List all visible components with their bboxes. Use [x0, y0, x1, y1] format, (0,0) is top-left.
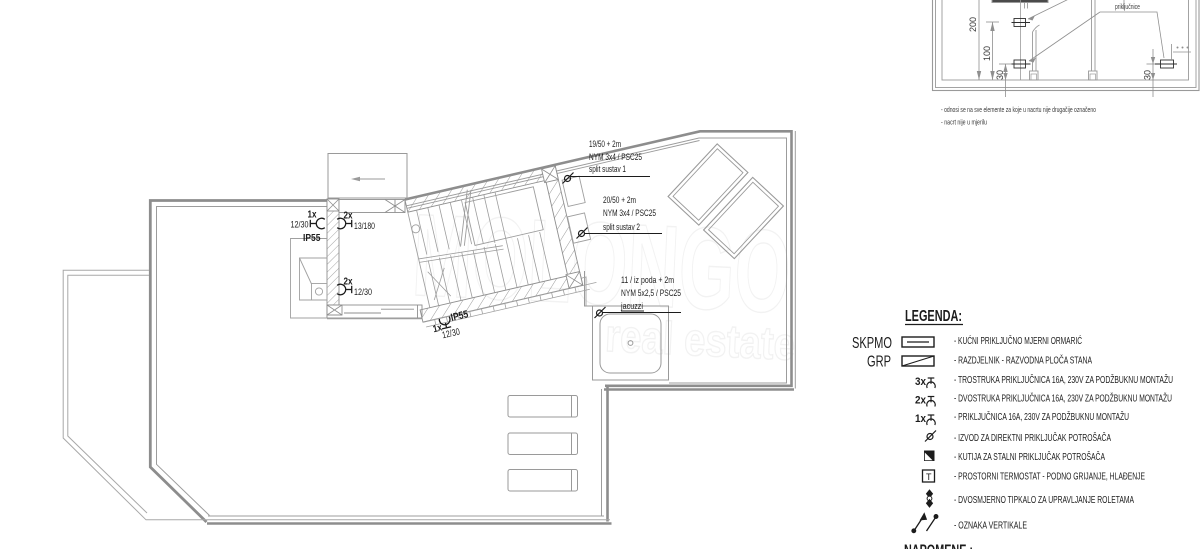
svg-text:- IZVOD ZA DIREKTNI PRIKLJUČAK: - IZVOD ZA DIREKTNI PRIKLJUČAK POTROŠAČA: [954, 431, 1111, 444]
svg-text:100: 100: [982, 46, 992, 61]
svg-text:priključnice: priključnice: [1115, 2, 1140, 11]
svg-text:3x: 3x: [915, 376, 927, 388]
svg-text:- PROSTORNI TERMOSTAT - PODNO: - PROSTORNI TERMOSTAT - PODNO GRIJANJE, …: [954, 472, 1145, 483]
svg-text:- PRIKLJUČNICA 16A, 230V ZA PO: - PRIKLJUČNICA 16A, 230V ZA PODŽBUKNU MO…: [954, 410, 1129, 423]
svg-text:- TROSTRUKA PRIKLJUČNICA 16A,: - TROSTRUKA PRIKLJUČNICA 16A, 230V ZA PO…: [954, 373, 1173, 386]
svg-text:12/30: 12/30: [354, 287, 372, 298]
svg-text:- DVOSMJERNO TIPKALO ZA UPRAVL: - DVOSMJERNO TIPKALO ZA UPRAVLJANJE ROLE…: [954, 495, 1134, 506]
svg-text:200: 200: [968, 17, 978, 32]
svg-text:GRP: GRP: [867, 354, 891, 371]
svg-text:13/180: 13/180: [354, 221, 375, 232]
svg-text:NYM 3x4 / PSC25: NYM 3x4 / PSC25: [603, 208, 656, 219]
svg-text:30: 30: [1143, 70, 1153, 80]
svg-text:jacuzzi: jacuzzi: [620, 301, 643, 312]
svg-text:IP55: IP55: [303, 232, 321, 244]
svg-text:1x: 1x: [308, 210, 317, 221]
svg-text:LEGENDA:: LEGENDA:: [905, 308, 962, 325]
svg-text:12/30: 12/30: [291, 220, 309, 231]
svg-text:NAPOMENE :: NAPOMENE :: [904, 543, 973, 549]
svg-text:20/50 + 2m: 20/50 + 2m: [603, 195, 636, 206]
svg-text:- nacrt nije u mjerilu: - nacrt nije u mjerilu: [941, 118, 987, 127]
svg-text:SKPMO: SKPMO: [852, 335, 892, 352]
svg-text:- RAZDJELNIK - RAZVODNA PLOČA: - RAZDJELNIK - RAZVODNA PLOČA STANA: [954, 354, 1092, 367]
svg-text:NYM 3x4 / PSC25: NYM 3x4 / PSC25: [589, 152, 642, 163]
svg-text:1x: 1x: [915, 413, 927, 425]
svg-text:2x: 2x: [344, 277, 353, 288]
svg-text:- odnosi se na sve elemente za: - odnosi se na sve elemente za koje u na…: [941, 105, 1096, 114]
svg-text:2x: 2x: [344, 211, 353, 222]
svg-text:T: T: [926, 472, 932, 482]
svg-text:30: 30: [995, 70, 1005, 80]
svg-text:split sustav 2: split sustav 2: [603, 222, 640, 233]
svg-text:19/50 + 2m: 19/50 + 2m: [589, 139, 621, 150]
svg-text:real estate: real estate: [604, 309, 796, 370]
svg-text:- OZNAKA VERTIKALE: - OZNAKA VERTIKALE: [954, 521, 1027, 532]
svg-text:2x: 2x: [915, 395, 927, 407]
svg-text:- KUĆNI PRIKLJUČNO MJERNI ORMA: - KUĆNI PRIKLJUČNO MJERNI ORMARIĆ: [954, 334, 1082, 347]
svg-text:NYM 5x2,5 / PSC25: NYM 5x2,5 / PSC25: [621, 288, 681, 299]
svg-text:- DVOSTRUKA PRIKLJUČNICA 16A,: - DVOSTRUKA PRIKLJUČNICA 16A, 230V ZA PO…: [954, 392, 1172, 405]
svg-text:11 / iz poda + 2m: 11 / iz poda + 2m: [621, 275, 674, 286]
svg-text:split sustav 1: split sustav 1: [589, 164, 626, 175]
svg-text:- KUTIJA ZA STALNI PRIKLJUČAK: - KUTIJA ZA STALNI PRIKLJUČAK POTROŠAČA: [954, 450, 1105, 463]
